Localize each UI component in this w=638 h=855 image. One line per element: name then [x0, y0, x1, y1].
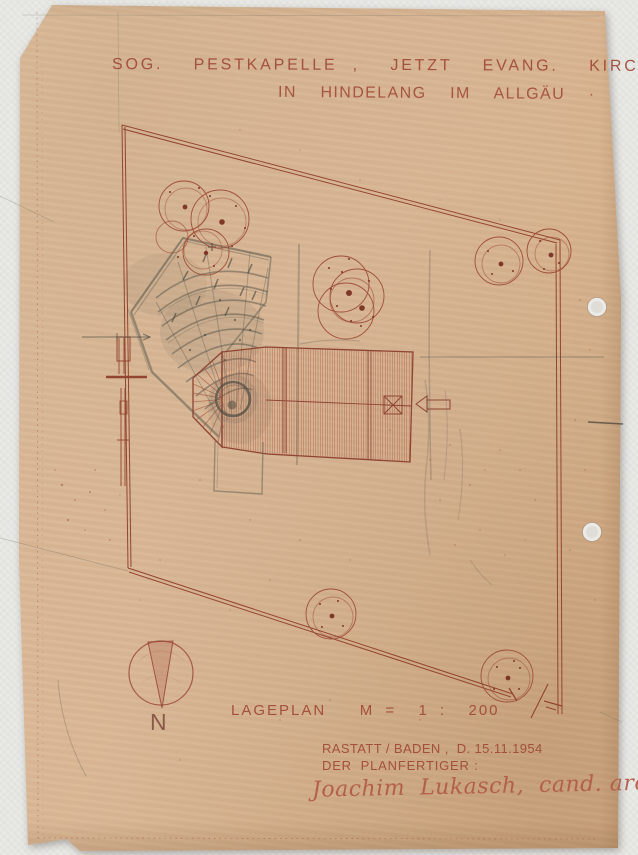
entrance-arrow-icon: [416, 396, 450, 412]
site-plan-drawing: [0, 0, 638, 855]
punch-holes: [583, 298, 607, 542]
tree-cluster-center: [313, 256, 384, 339]
scanned-site-plan: SOG. PESTKAPELLE , JETZT EVANG. KIRCHE I…: [0, 0, 638, 855]
place-date-line: RASTATT / BADEN , D. 15.11.1954: [322, 741, 543, 756]
plan-scale-label: LAGEPLAN M = 1 : 200: [231, 702, 500, 719]
title-line-2: IN HINDELANG IM ALLGÄU ·: [278, 84, 596, 104]
north-arrow-icon: [129, 641, 193, 708]
tree-southeast: [481, 650, 533, 702]
tree-south: [306, 589, 356, 639]
title-line-1: SOG. PESTKAPELLE , JETZT EVANG. KIRCHE: [112, 56, 638, 76]
north-label: N: [150, 709, 167, 736]
author-label: DER PLANFERTIGER :: [322, 758, 479, 773]
